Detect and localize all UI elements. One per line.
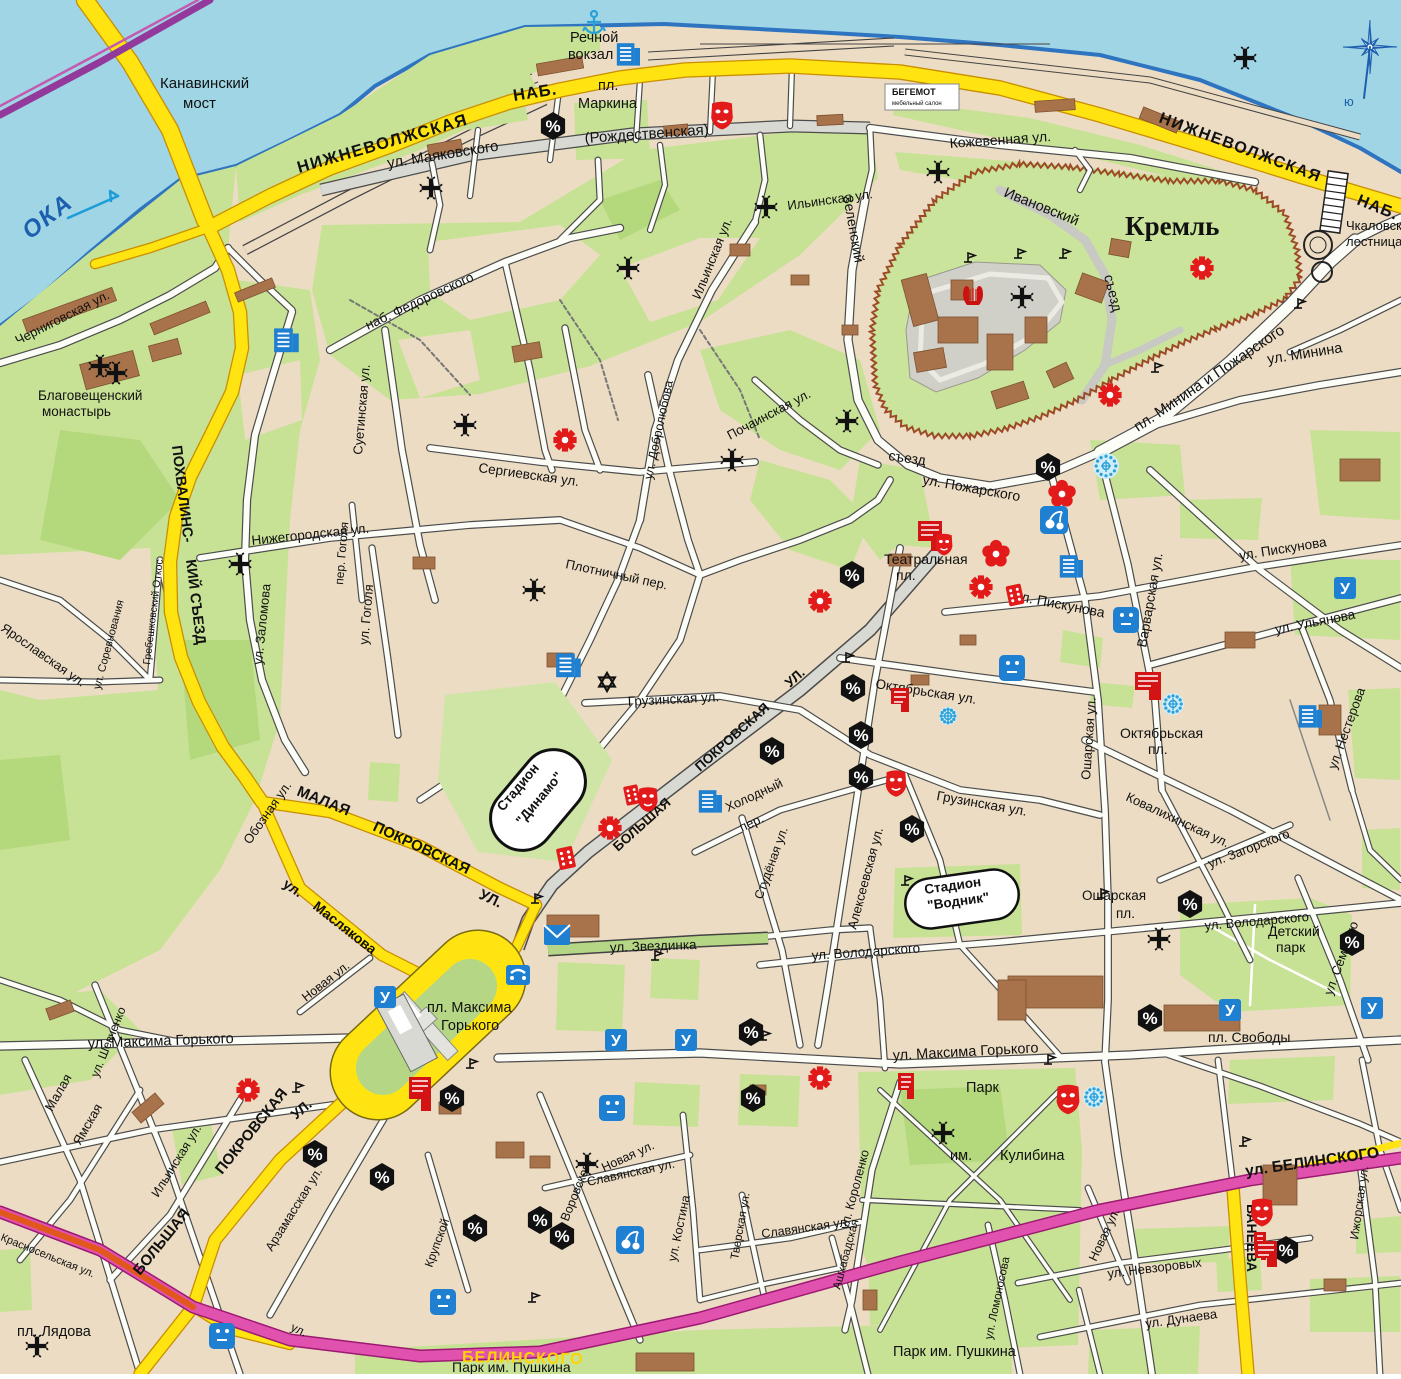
svg-text:У: У [681,1033,692,1050]
svg-text:%: % [1182,895,1197,914]
svg-text:Театральная: Театральная [884,551,968,567]
svg-text:%: % [853,768,868,787]
svg-text:пл.: пл. [598,78,618,94]
svg-text:%: % [745,1089,760,1108]
svg-text:%: % [904,820,919,839]
svg-text:им.: им. [950,1148,972,1164]
svg-text:парк: парк [1276,939,1306,955]
svg-text:У: У [380,990,391,1007]
svg-text:%: % [444,1089,459,1108]
svg-text:Парк им. Пушкина: Парк им. Пушкина [893,1344,1017,1360]
svg-text:%: % [532,1211,547,1230]
svg-text:%: % [764,742,779,761]
svg-text:Маркина: Маркина [578,96,638,112]
svg-text:%: % [467,1219,482,1238]
svg-text:мебельный салон: мебельный салон [892,100,942,107]
svg-text:У: У [1340,581,1351,598]
svg-text:Кулибина: Кулибина [1000,1148,1065,1164]
svg-text:БЕГЕМОТ: БЕГЕМОТ [892,87,936,97]
svg-text:пл.: пл. [1116,906,1135,921]
svg-text:Благовещенский: Благовещенский [38,388,142,403]
svg-text:Канавинский: Канавинский [160,75,249,92]
svg-text:%: % [1142,1009,1157,1028]
svg-text:монастырь: монастырь [42,404,111,419]
svg-text:%: % [545,117,560,136]
svg-text:У: У [1367,1001,1378,1018]
svg-text:У: У [1225,1003,1236,1020]
svg-text:%: % [1040,458,1055,477]
svg-text:ул. Звездинка: ул. Звездинка [610,937,698,955]
svg-text:пл.: пл. [1148,741,1168,757]
svg-text:%: % [743,1023,758,1042]
svg-text:%: % [307,1145,322,1164]
svg-text:пл.: пл. [896,567,916,583]
svg-text:У: У [611,1033,622,1050]
svg-text:Парк им. Пушкина: Парк им. Пушкина [452,1359,571,1374]
svg-text:%: % [1278,1241,1293,1260]
svg-text:мост: мост [183,95,216,112]
svg-text:ю: ю [1344,94,1354,109]
svg-text:%: % [853,726,868,745]
svg-text:Парк: Парк [966,1080,1000,1096]
svg-text:пл. Максима: пл. Максима [427,1000,513,1016]
svg-text:Ошарская: Ошарская [1082,888,1146,903]
svg-text:%: % [554,1227,569,1246]
svg-text:пл. Свободы: пл. Свободы [1208,1029,1290,1045]
svg-text:%: % [845,679,860,698]
svg-text:пл. Лядова: пл. Лядова [17,1324,92,1340]
svg-text:%: % [1344,933,1359,952]
svg-text:%: % [374,1168,389,1187]
svg-text:Горького: Горького [441,1018,499,1034]
svg-text:Кремль: Кремль [1125,211,1219,241]
svg-text:Октябрьская: Октябрьская [1120,725,1203,741]
svg-text:%: % [844,566,859,585]
svg-text:лестница: лестница [1346,234,1401,249]
svg-text:вокзал: вокзал [568,47,613,63]
svg-text:Чкаловск.: Чкаловск. [1346,218,1401,233]
